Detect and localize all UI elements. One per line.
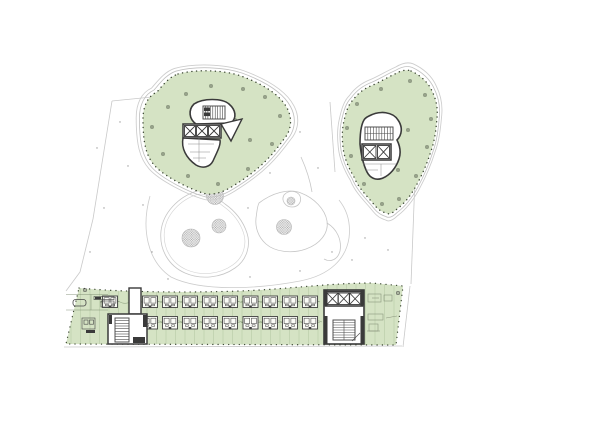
room-module bbox=[140, 296, 159, 308]
room-module bbox=[100, 296, 119, 308]
room-module bbox=[300, 296, 319, 308]
east-tower-lifts bbox=[362, 144, 391, 160]
plaza-path-west bbox=[161, 191, 249, 277]
architectural-plan bbox=[0, 0, 600, 424]
room-module bbox=[160, 296, 179, 308]
floor-plan-canvas bbox=[0, 0, 600, 424]
room-module bbox=[200, 317, 219, 330]
room-module bbox=[160, 317, 179, 330]
room-module bbox=[241, 317, 260, 330]
room-module bbox=[280, 317, 299, 330]
room-module bbox=[220, 296, 239, 308]
room-module bbox=[260, 296, 279, 308]
room-module bbox=[180, 296, 199, 308]
room-module bbox=[220, 317, 239, 330]
plaza-path-corridor bbox=[301, 157, 312, 192]
west-core-lifts bbox=[183, 124, 221, 138]
room-module bbox=[200, 296, 219, 308]
room-module bbox=[180, 317, 199, 330]
room-module bbox=[241, 296, 260, 308]
west-stair-hatch bbox=[115, 318, 129, 342]
room-module bbox=[280, 296, 299, 308]
room-module bbox=[260, 317, 279, 330]
east-elevator-bank bbox=[326, 292, 363, 307]
rooms-lower bbox=[140, 317, 319, 330]
service-shaft bbox=[129, 288, 141, 314]
room-module bbox=[300, 317, 319, 330]
